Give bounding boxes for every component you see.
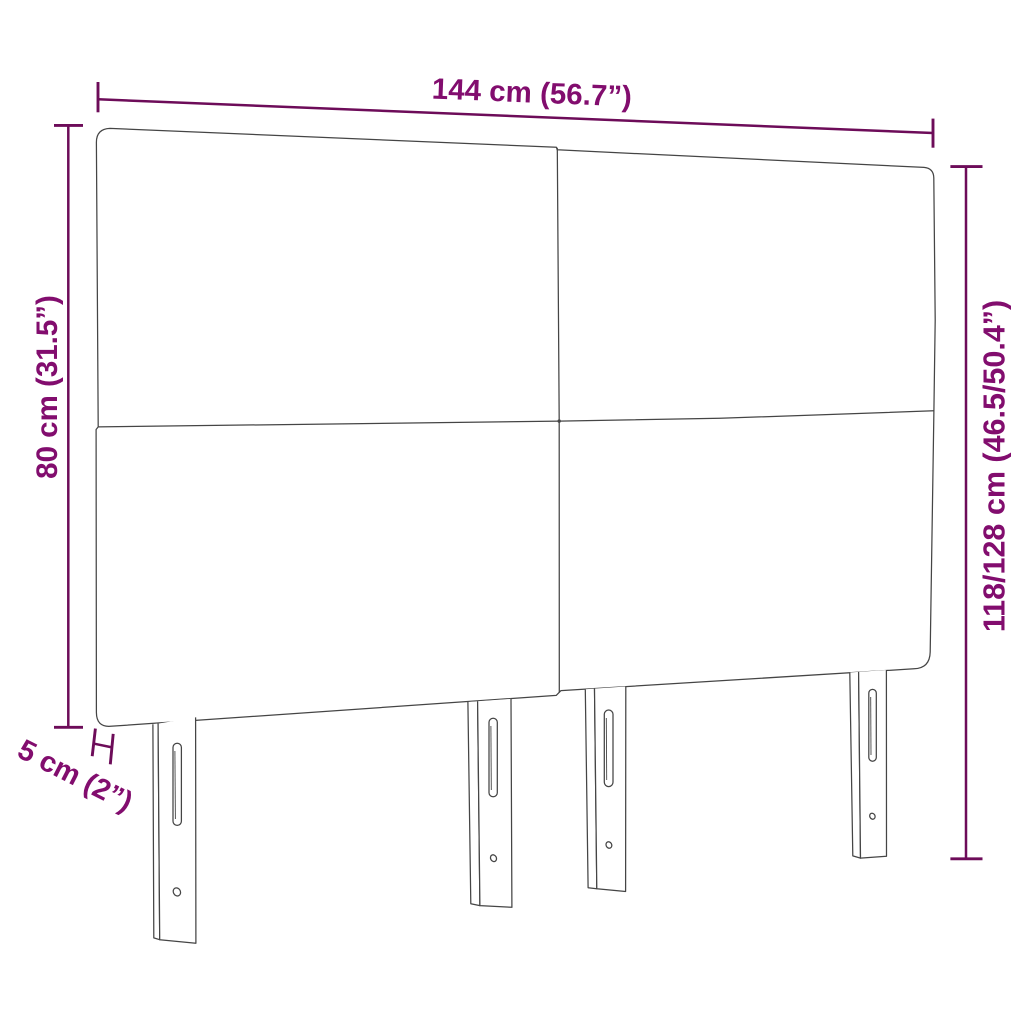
svg-text:118/128 cm (46.5/50.4”): 118/128 cm (46.5/50.4”) — [978, 300, 1012, 632]
svg-text:80 cm (31.5”): 80 cm (31.5”) — [31, 295, 64, 479]
